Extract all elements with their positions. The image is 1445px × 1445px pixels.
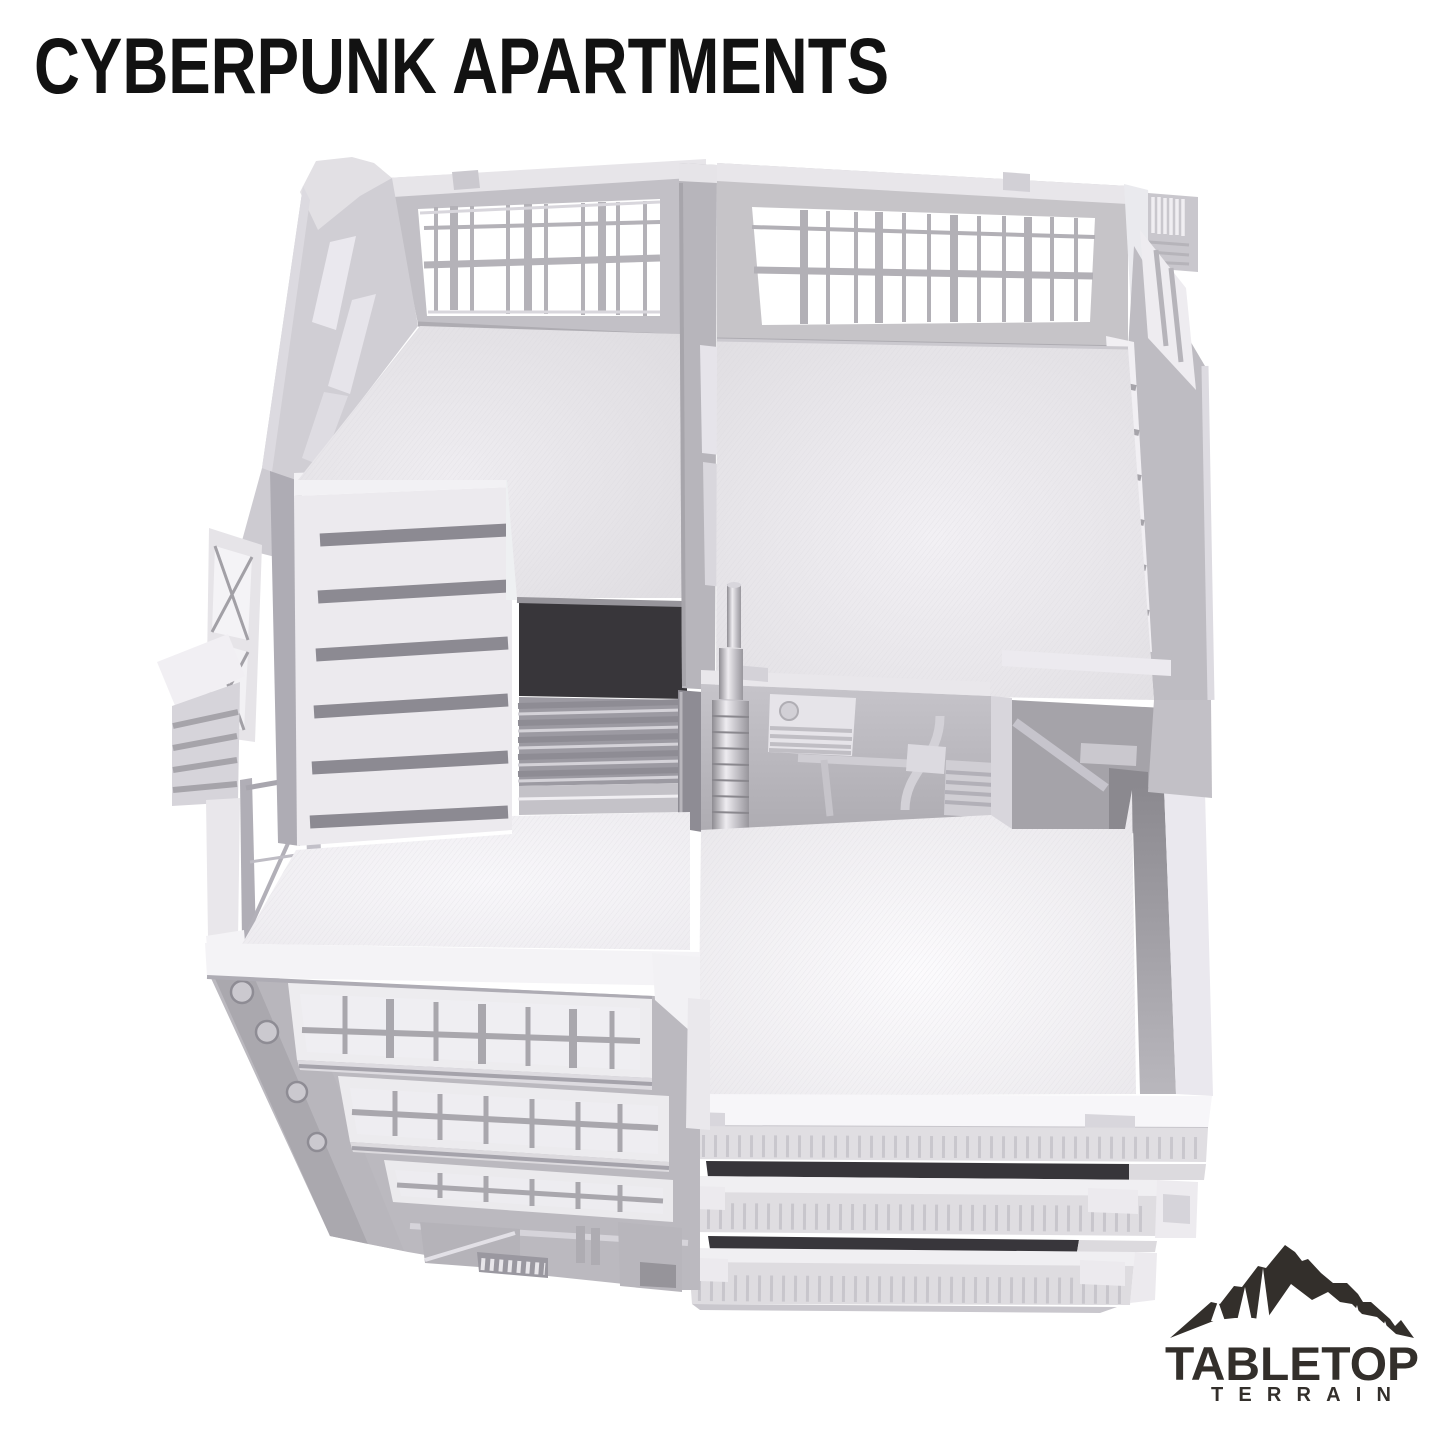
svg-text:CYBERPUNK APARTMENTS: CYBERPUNK APARTMENTS xyxy=(34,21,889,110)
svg-text:TABLETOP: TABLETOP xyxy=(1165,1337,1419,1390)
